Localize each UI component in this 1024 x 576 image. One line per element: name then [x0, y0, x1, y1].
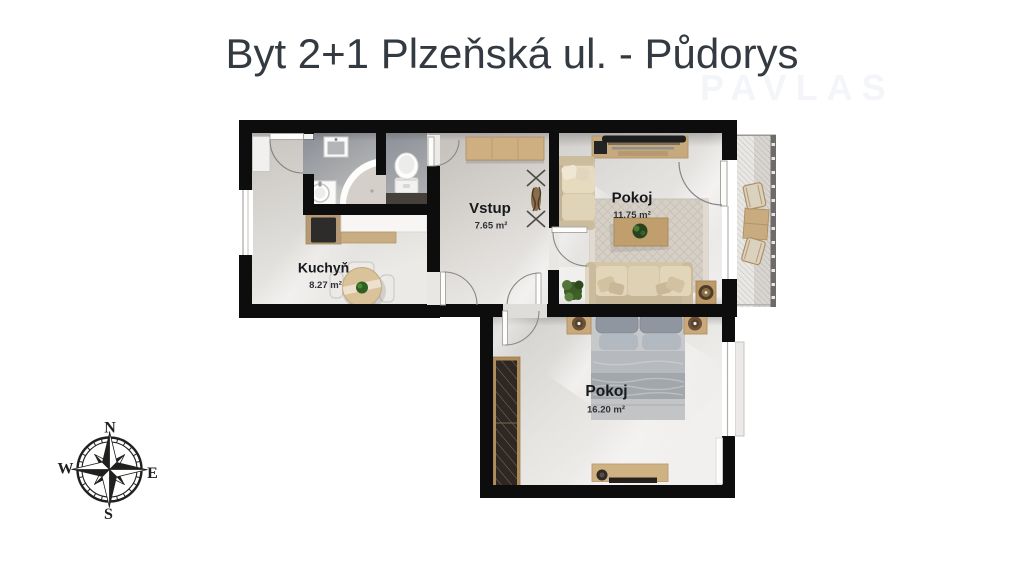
svg-text:Byt 2+1 Plzeňská ul. - Půdorys: Byt 2+1 Plzeňská ul. - Půdorys [225, 30, 798, 77]
svg-text:E: E [147, 465, 158, 482]
svg-text:11.75 m²: 11.75 m² [613, 210, 651, 221]
svg-text:8.27 m²: 8.27 m² [309, 280, 342, 291]
svg-text:Pokoj: Pokoj [612, 190, 653, 207]
svg-text:Pokoj: Pokoj [585, 383, 627, 400]
svg-text:W: W [58, 461, 74, 478]
svg-text:7.65 m²: 7.65 m² [475, 221, 508, 232]
svg-text:16.20 m²: 16.20 m² [587, 405, 625, 416]
svg-text:S: S [104, 506, 113, 523]
svg-text:Kuchyň: Kuchyň [298, 260, 349, 276]
svg-text:Vstup: Vstup [469, 200, 511, 217]
svg-text:N: N [104, 420, 116, 437]
